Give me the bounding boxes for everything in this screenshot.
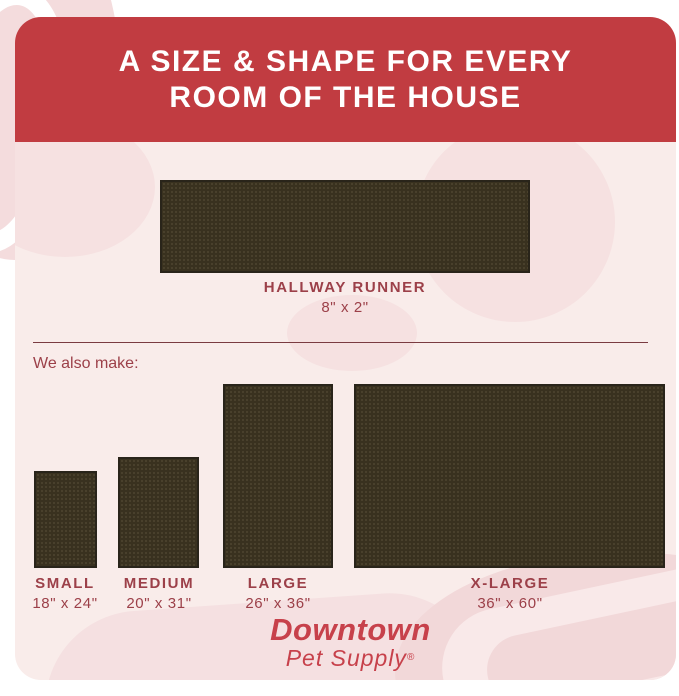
hallway-runner-dimensions: 8" x 2" xyxy=(195,299,495,316)
brand-logo: Downtown Pet Supply® xyxy=(20,614,676,670)
infographic-canvas: { "header": { "title_line1": "A SIZE & S… xyxy=(0,0,679,696)
brand-subtitle: Pet Supply® xyxy=(20,646,676,670)
large-dimensions: 26" x 36" xyxy=(218,595,338,612)
registered-trademark-symbol: ® xyxy=(407,652,415,663)
large-mat xyxy=(223,384,333,568)
brand-name: Downtown xyxy=(20,614,676,646)
x-large-label: X-LARGE xyxy=(450,575,570,592)
section-divider xyxy=(33,342,648,343)
medium-mat xyxy=(118,457,199,568)
medium-dimensions: 20" x 31" xyxy=(99,595,219,612)
hallway-runner-mat xyxy=(160,180,530,273)
header-banner: A SIZE & SHAPE FOR EVERY ROOM OF THE HOU… xyxy=(15,17,676,142)
brand-subtitle-text: Pet Supply xyxy=(286,645,407,671)
also-make-label: We also make: xyxy=(33,355,139,373)
x-large-dimensions: 36" x 60" xyxy=(450,595,570,612)
medium-label: MEDIUM xyxy=(99,575,219,592)
hallway-runner-label: HALLWAY RUNNER xyxy=(195,279,495,296)
infographic-card: A SIZE & SHAPE FOR EVERY ROOM OF THE HOU… xyxy=(15,17,676,680)
x-large-mat xyxy=(354,384,665,568)
large-label: LARGE xyxy=(218,575,338,592)
header-title-line2: ROOM OF THE HOUSE xyxy=(169,81,521,115)
small-mat xyxy=(34,471,97,568)
header-title-line1: A SIZE & SHAPE FOR EVERY xyxy=(119,45,573,79)
